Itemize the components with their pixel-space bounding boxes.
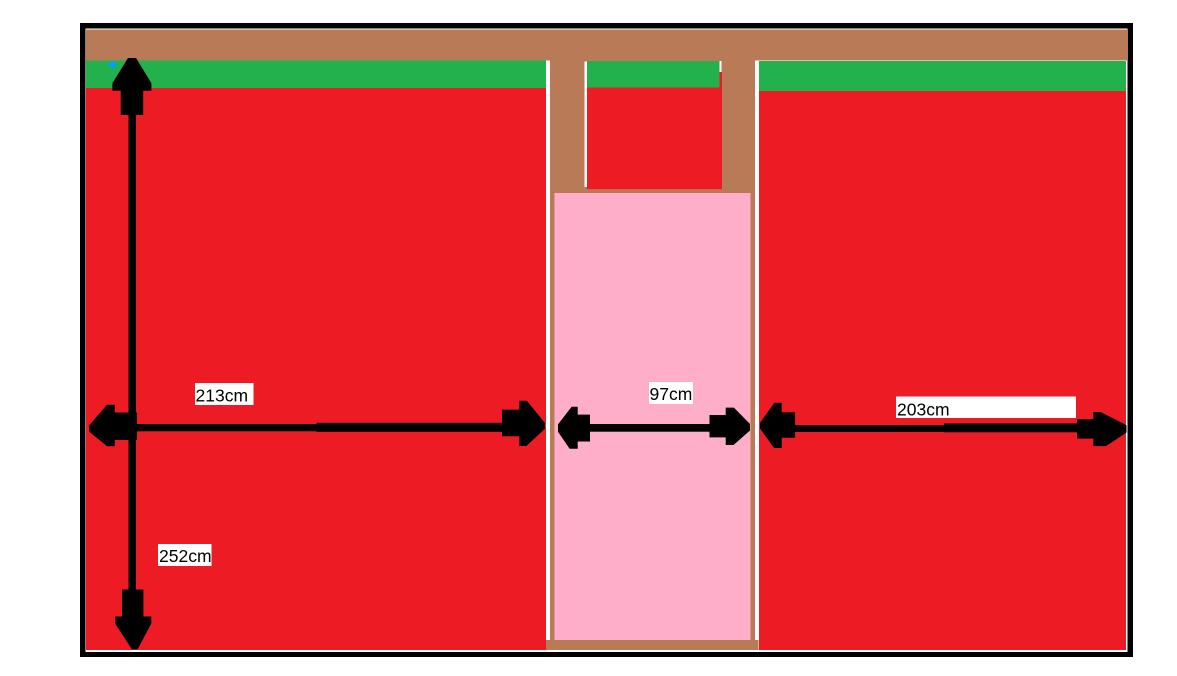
svg-text:252cm: 252cm	[159, 546, 212, 566]
svg-text:213cm: 213cm	[196, 386, 249, 406]
svg-text:203cm: 203cm	[897, 400, 950, 420]
svg-text:97cm: 97cm	[650, 384, 693, 404]
